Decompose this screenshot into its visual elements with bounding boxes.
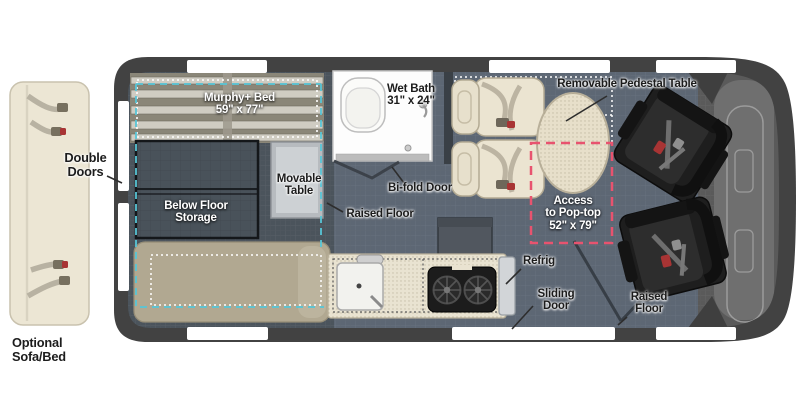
window-opening-bottom-right (656, 327, 736, 340)
wardrobe-cabinet (438, 218, 492, 258)
sofa-bed-position (134, 242, 330, 322)
cab (714, 80, 774, 322)
drain-icon (405, 145, 411, 151)
double-door-opening-top (118, 101, 129, 191)
stove-icon (428, 265, 496, 312)
window-opening-top-right (656, 60, 736, 73)
double-door-opening-bottom (118, 203, 129, 291)
movable-table (271, 142, 323, 218)
below-floor-storage (136, 141, 258, 238)
shower-threshold (336, 154, 429, 161)
floor-plan-drawing (0, 0, 800, 400)
floor-plan-canvas: Murphy+ Bed 59" x 77" Double Doors Below… (0, 0, 800, 400)
refrigerator (499, 257, 515, 315)
galley-counter (328, 254, 515, 318)
window-opening-top-left (187, 60, 267, 73)
sink-icon (337, 255, 383, 310)
window-opening-bottom-left (187, 327, 268, 340)
window-opening-top-mid (489, 60, 610, 73)
sliding-door-opening (452, 327, 615, 340)
optional-sofa-bed (10, 82, 89, 325)
toilet-icon (341, 78, 385, 132)
wet-bath (333, 71, 432, 161)
passenger-seat-1 (452, 78, 544, 136)
